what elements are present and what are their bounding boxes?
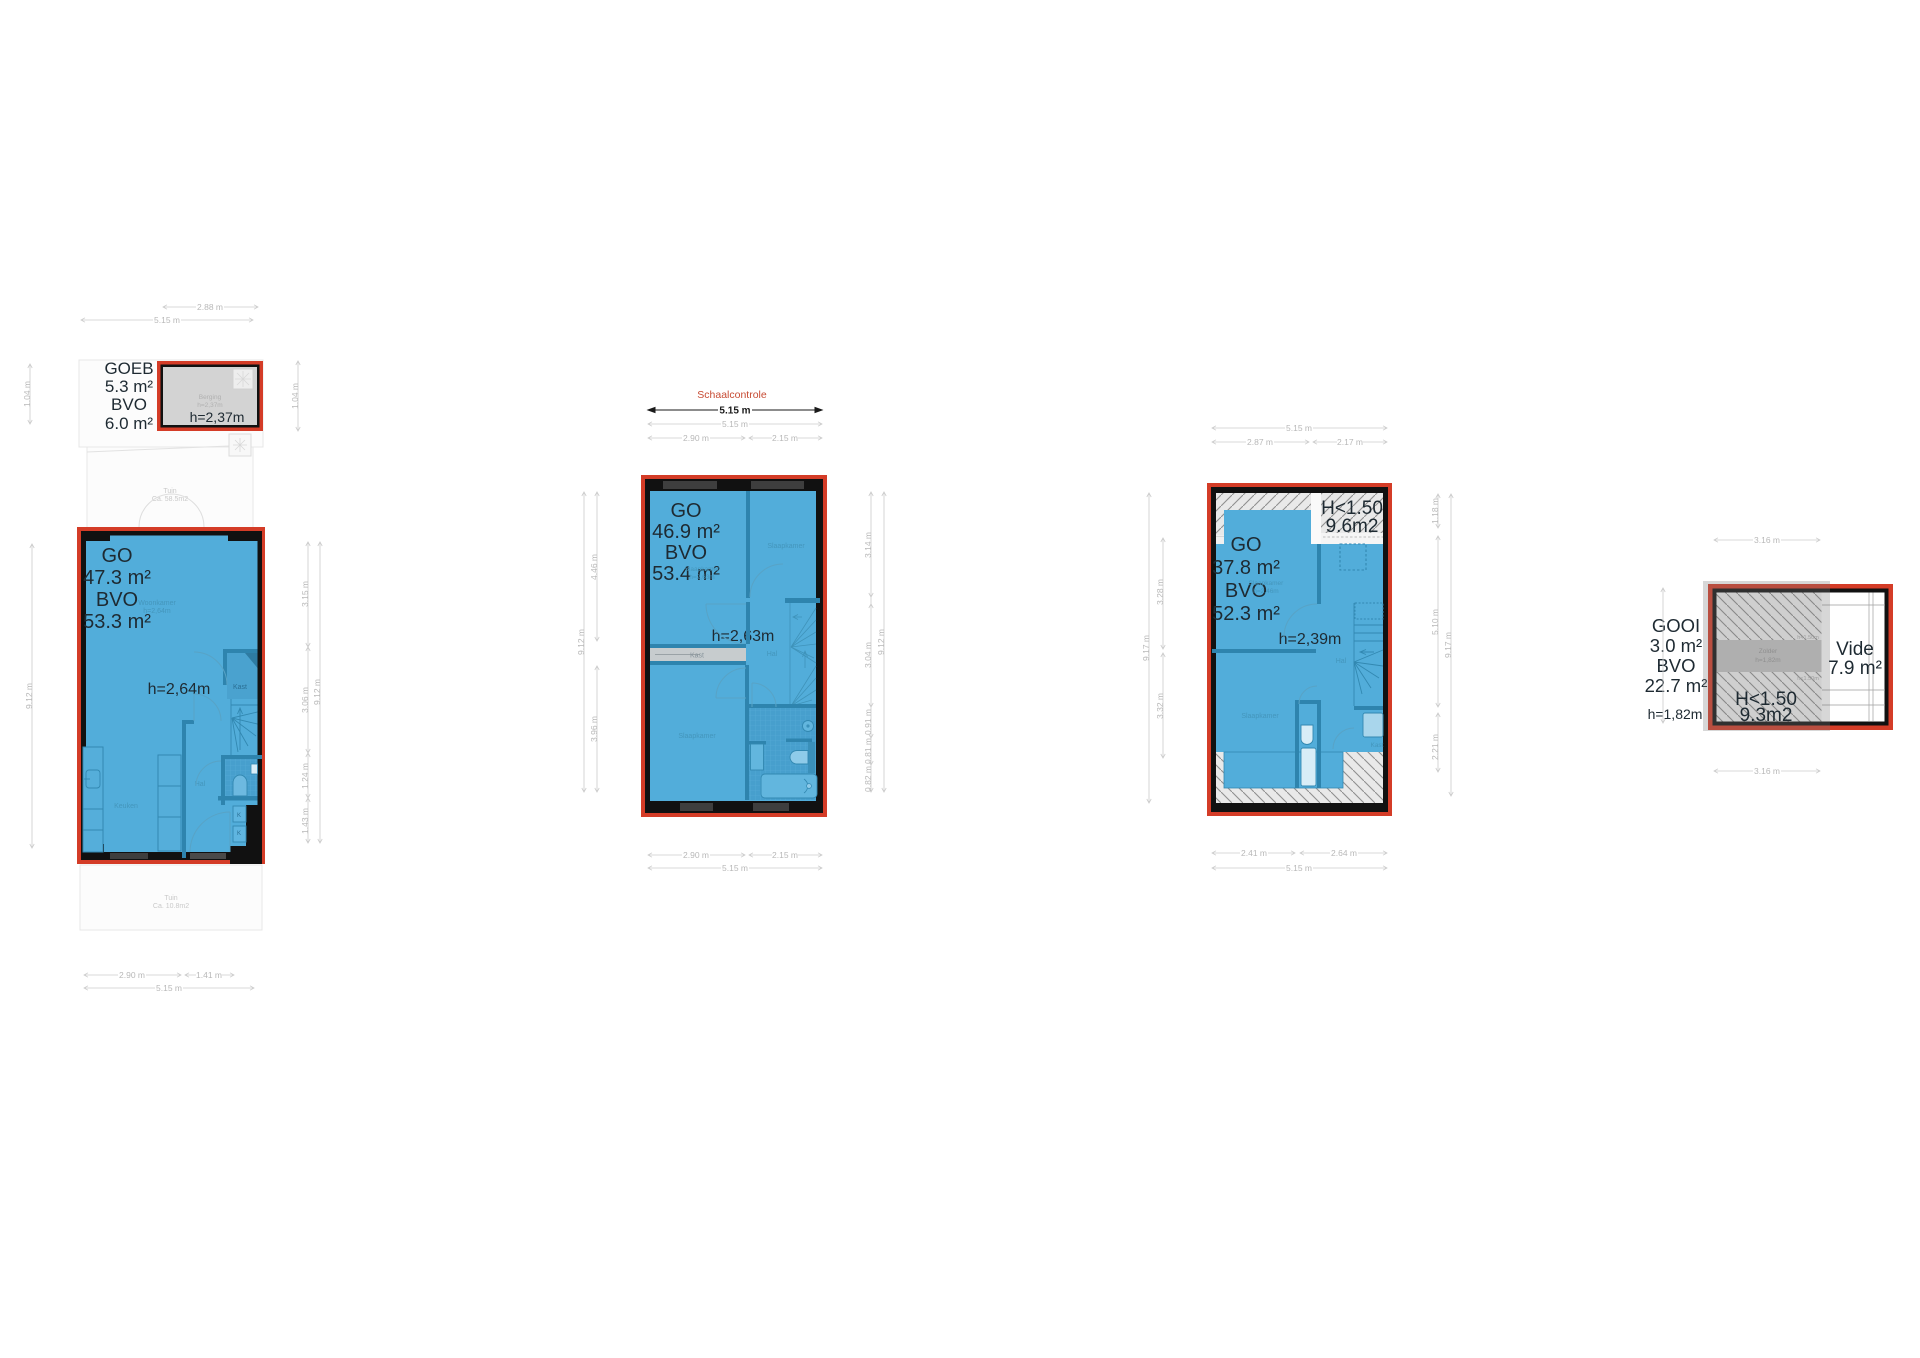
svg-text:Slaapkamer: Slaapkamer bbox=[678, 733, 716, 740]
svg-text:Kast: Kast bbox=[233, 684, 247, 691]
svg-text:Tuin: Tuin bbox=[164, 895, 177, 902]
svg-text:47.3 m²: 47.3 m² bbox=[83, 567, 151, 589]
svg-text:BVO: BVO bbox=[665, 542, 707, 564]
svg-text:2.15 m: 2.15 m bbox=[772, 433, 798, 443]
svg-text:0.81 m: 0.81 m bbox=[863, 738, 873, 764]
svg-text:2.15 m: 2.15 m bbox=[772, 850, 798, 860]
svg-text:h=2,63m: h=2,63m bbox=[712, 628, 775, 645]
svg-text:9.12 m: 9.12 m bbox=[312, 679, 322, 705]
svg-text:Woonkamer: Woonkamer bbox=[138, 600, 176, 607]
svg-text:2.41 m: 2.41 m bbox=[1241, 848, 1267, 858]
svg-text:5.15 m: 5.15 m bbox=[722, 863, 748, 873]
svg-text:5.3 m²: 5.3 m² bbox=[105, 377, 154, 396]
svg-text:BVO: BVO bbox=[1656, 655, 1695, 676]
svg-text:52.3 m²: 52.3 m² bbox=[1212, 603, 1280, 625]
svg-text:5.15 m: 5.15 m bbox=[722, 419, 748, 429]
svg-text:5.15 m: 5.15 m bbox=[719, 406, 750, 417]
svg-text:Slaapkamer: Slaapkamer bbox=[1249, 580, 1285, 587]
svg-text:h=2,39m: h=2,39m bbox=[1279, 631, 1342, 648]
svg-text:4.46 m: 4.46 m bbox=[589, 554, 599, 580]
svg-text:6.0 m²: 6.0 m² bbox=[105, 414, 154, 433]
svg-text:3.32 m: 3.32 m bbox=[1155, 693, 1165, 719]
svg-text:BVO: BVO bbox=[111, 395, 147, 414]
svg-text:K: K bbox=[237, 831, 241, 837]
svg-text:Slaapkamer: Slaapkamer bbox=[685, 566, 721, 573]
svg-text:53.3 m²: 53.3 m² bbox=[83, 611, 151, 633]
svg-text:9.17 m: 9.17 m bbox=[1141, 635, 1151, 661]
svg-text:5.10 m: 5.10 m bbox=[1430, 609, 1440, 635]
svg-text:h=2,63m: h=2,63m bbox=[689, 574, 714, 581]
svg-text:9.12 m: 9.12 m bbox=[876, 629, 886, 655]
svg-text:22.7 m²: 22.7 m² bbox=[1645, 675, 1708, 696]
svg-text:3.15 m: 3.15 m bbox=[300, 581, 310, 607]
svg-text:46.9 m²: 46.9 m² bbox=[652, 521, 720, 543]
svg-text:0.91 m: 0.91 m bbox=[863, 709, 873, 735]
svg-text:h=2,46m: h=2,46m bbox=[1253, 588, 1278, 595]
svg-text:Schaalcontrole: Schaalcontrole bbox=[697, 389, 767, 401]
svg-text:2.64 m: 2.64 m bbox=[1331, 848, 1357, 858]
svg-text:2.87 m: 2.87 m bbox=[1247, 437, 1273, 447]
svg-text:3.0 m²: 3.0 m² bbox=[1650, 635, 1702, 656]
svg-text:h=1,82m: h=1,82m bbox=[1648, 706, 1703, 722]
svg-text:2.90 m: 2.90 m bbox=[683, 433, 709, 443]
svg-text:GO: GO bbox=[101, 545, 132, 567]
svg-text:Slaapkamer: Slaapkamer bbox=[1241, 713, 1279, 720]
svg-text:h=2,64m: h=2,64m bbox=[143, 608, 171, 615]
svg-text:1.41 m: 1.41 m bbox=[196, 970, 222, 980]
svg-text:Hal: Hal bbox=[1336, 658, 1347, 665]
svg-text:1.43 m: 1.43 m bbox=[300, 808, 310, 834]
svg-text:2.17 m: 2.17 m bbox=[1337, 437, 1363, 447]
svg-text:2.90 m: 2.90 m bbox=[119, 970, 145, 980]
svg-text:Slaapkamer: Slaapkamer bbox=[767, 543, 805, 550]
svg-text:1.24 m: 1.24 m bbox=[300, 763, 310, 789]
svg-text:0.82 m: 0.82 m bbox=[863, 766, 873, 792]
svg-text:9.12 m: 9.12 m bbox=[24, 683, 34, 709]
svg-text:Berging: Berging bbox=[199, 394, 222, 401]
svg-text:5.15 m: 5.15 m bbox=[154, 315, 180, 325]
svg-text:K: K bbox=[237, 813, 241, 819]
svg-text:5.15 m: 5.15 m bbox=[156, 983, 182, 993]
svg-text:2.90 m: 2.90 m bbox=[683, 850, 709, 860]
svg-text:5.15 m: 5.15 m bbox=[1286, 423, 1312, 433]
svg-text:GOEB: GOEB bbox=[104, 359, 153, 378]
svg-text:h=2,37m: h=2,37m bbox=[190, 409, 245, 425]
svg-text:7.9 m²: 7.9 m² bbox=[1828, 658, 1882, 679]
svg-text:h=2,64m: h=2,64m bbox=[148, 681, 211, 698]
svg-text:Vide: Vide bbox=[1836, 639, 1874, 660]
svg-text:Ca. 10.8m2: Ca. 10.8m2 bbox=[153, 903, 189, 910]
svg-text:Hal: Hal bbox=[767, 651, 778, 658]
svg-text:h=2,37m: h=2,37m bbox=[197, 402, 222, 409]
svg-text:1.04 m: 1.04 m bbox=[290, 383, 300, 409]
svg-text:1.18 m: 1.18 m bbox=[1430, 498, 1440, 524]
svg-text:37.8 m²: 37.8 m² bbox=[1212, 557, 1280, 579]
svg-text:3.04 m: 3.04 m bbox=[863, 642, 873, 668]
svg-text:2.21 m: 2.21 m bbox=[1430, 734, 1440, 760]
svg-text:9.17 m: 9.17 m bbox=[1443, 632, 1453, 658]
svg-text:3.14 m: 3.14 m bbox=[863, 532, 873, 558]
svg-text:Kast: Kast bbox=[1370, 742, 1383, 749]
svg-text:Kast: Kast bbox=[690, 653, 704, 660]
svg-text:2.88 m: 2.88 m bbox=[197, 302, 223, 312]
svg-text:9.6m2: 9.6m2 bbox=[1326, 516, 1379, 537]
svg-text:BVO: BVO bbox=[96, 589, 138, 611]
svg-text:3.16 m: 3.16 m bbox=[1754, 766, 1780, 776]
svg-text:1.04 m: 1.04 m bbox=[22, 381, 32, 407]
svg-text:3.06 m: 3.06 m bbox=[300, 687, 310, 713]
svg-text:3.96 m: 3.96 m bbox=[589, 716, 599, 742]
svg-text:GO: GO bbox=[1230, 534, 1261, 556]
svg-text:GOOI: GOOI bbox=[1652, 615, 1700, 636]
svg-text:3.28 m: 3.28 m bbox=[1155, 579, 1165, 605]
svg-text:5.15 m: 5.15 m bbox=[1286, 863, 1312, 873]
svg-text:GO: GO bbox=[670, 500, 701, 522]
svg-text:9.12 m: 9.12 m bbox=[576, 629, 586, 655]
svg-text:9.3m2: 9.3m2 bbox=[1740, 705, 1793, 726]
svg-text:Keuken: Keuken bbox=[114, 803, 138, 810]
svg-text:3.16 m: 3.16 m bbox=[1754, 535, 1780, 545]
